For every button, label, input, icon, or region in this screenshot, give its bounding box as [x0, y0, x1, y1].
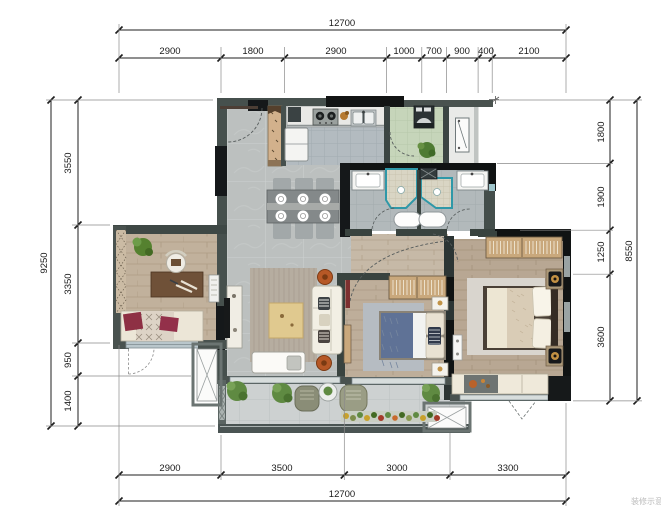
svg-text:400: 400 [478, 46, 494, 57]
svg-text:2900: 2900 [159, 463, 180, 474]
svg-text:1800: 1800 [596, 121, 607, 142]
svg-text:3300: 3300 [497, 463, 518, 474]
svg-text:1900: 1900 [596, 186, 607, 207]
svg-text:900: 900 [454, 46, 470, 57]
svg-text:12700: 12700 [329, 489, 355, 500]
svg-text:3500: 3500 [271, 463, 292, 474]
svg-text:9250: 9250 [39, 252, 50, 273]
svg-text:950: 950 [63, 352, 74, 368]
svg-text:1000: 1000 [393, 46, 414, 57]
svg-text:3600: 3600 [596, 326, 607, 347]
svg-text:12700: 12700 [329, 18, 355, 29]
svg-text:2100: 2100 [518, 46, 539, 57]
svg-text:1400: 1400 [63, 390, 74, 411]
svg-text:装修示意: 装修示意 [631, 496, 661, 506]
svg-text:700: 700 [426, 46, 442, 57]
svg-text:3550: 3550 [63, 152, 74, 173]
svg-text:3000: 3000 [386, 463, 407, 474]
svg-text:2900: 2900 [159, 46, 180, 57]
svg-text:8550: 8550 [624, 240, 635, 261]
svg-text:3350: 3350 [63, 273, 74, 294]
svg-text:2900: 2900 [325, 46, 346, 57]
svg-text:1800: 1800 [242, 46, 263, 57]
svg-text:1250: 1250 [596, 241, 607, 262]
